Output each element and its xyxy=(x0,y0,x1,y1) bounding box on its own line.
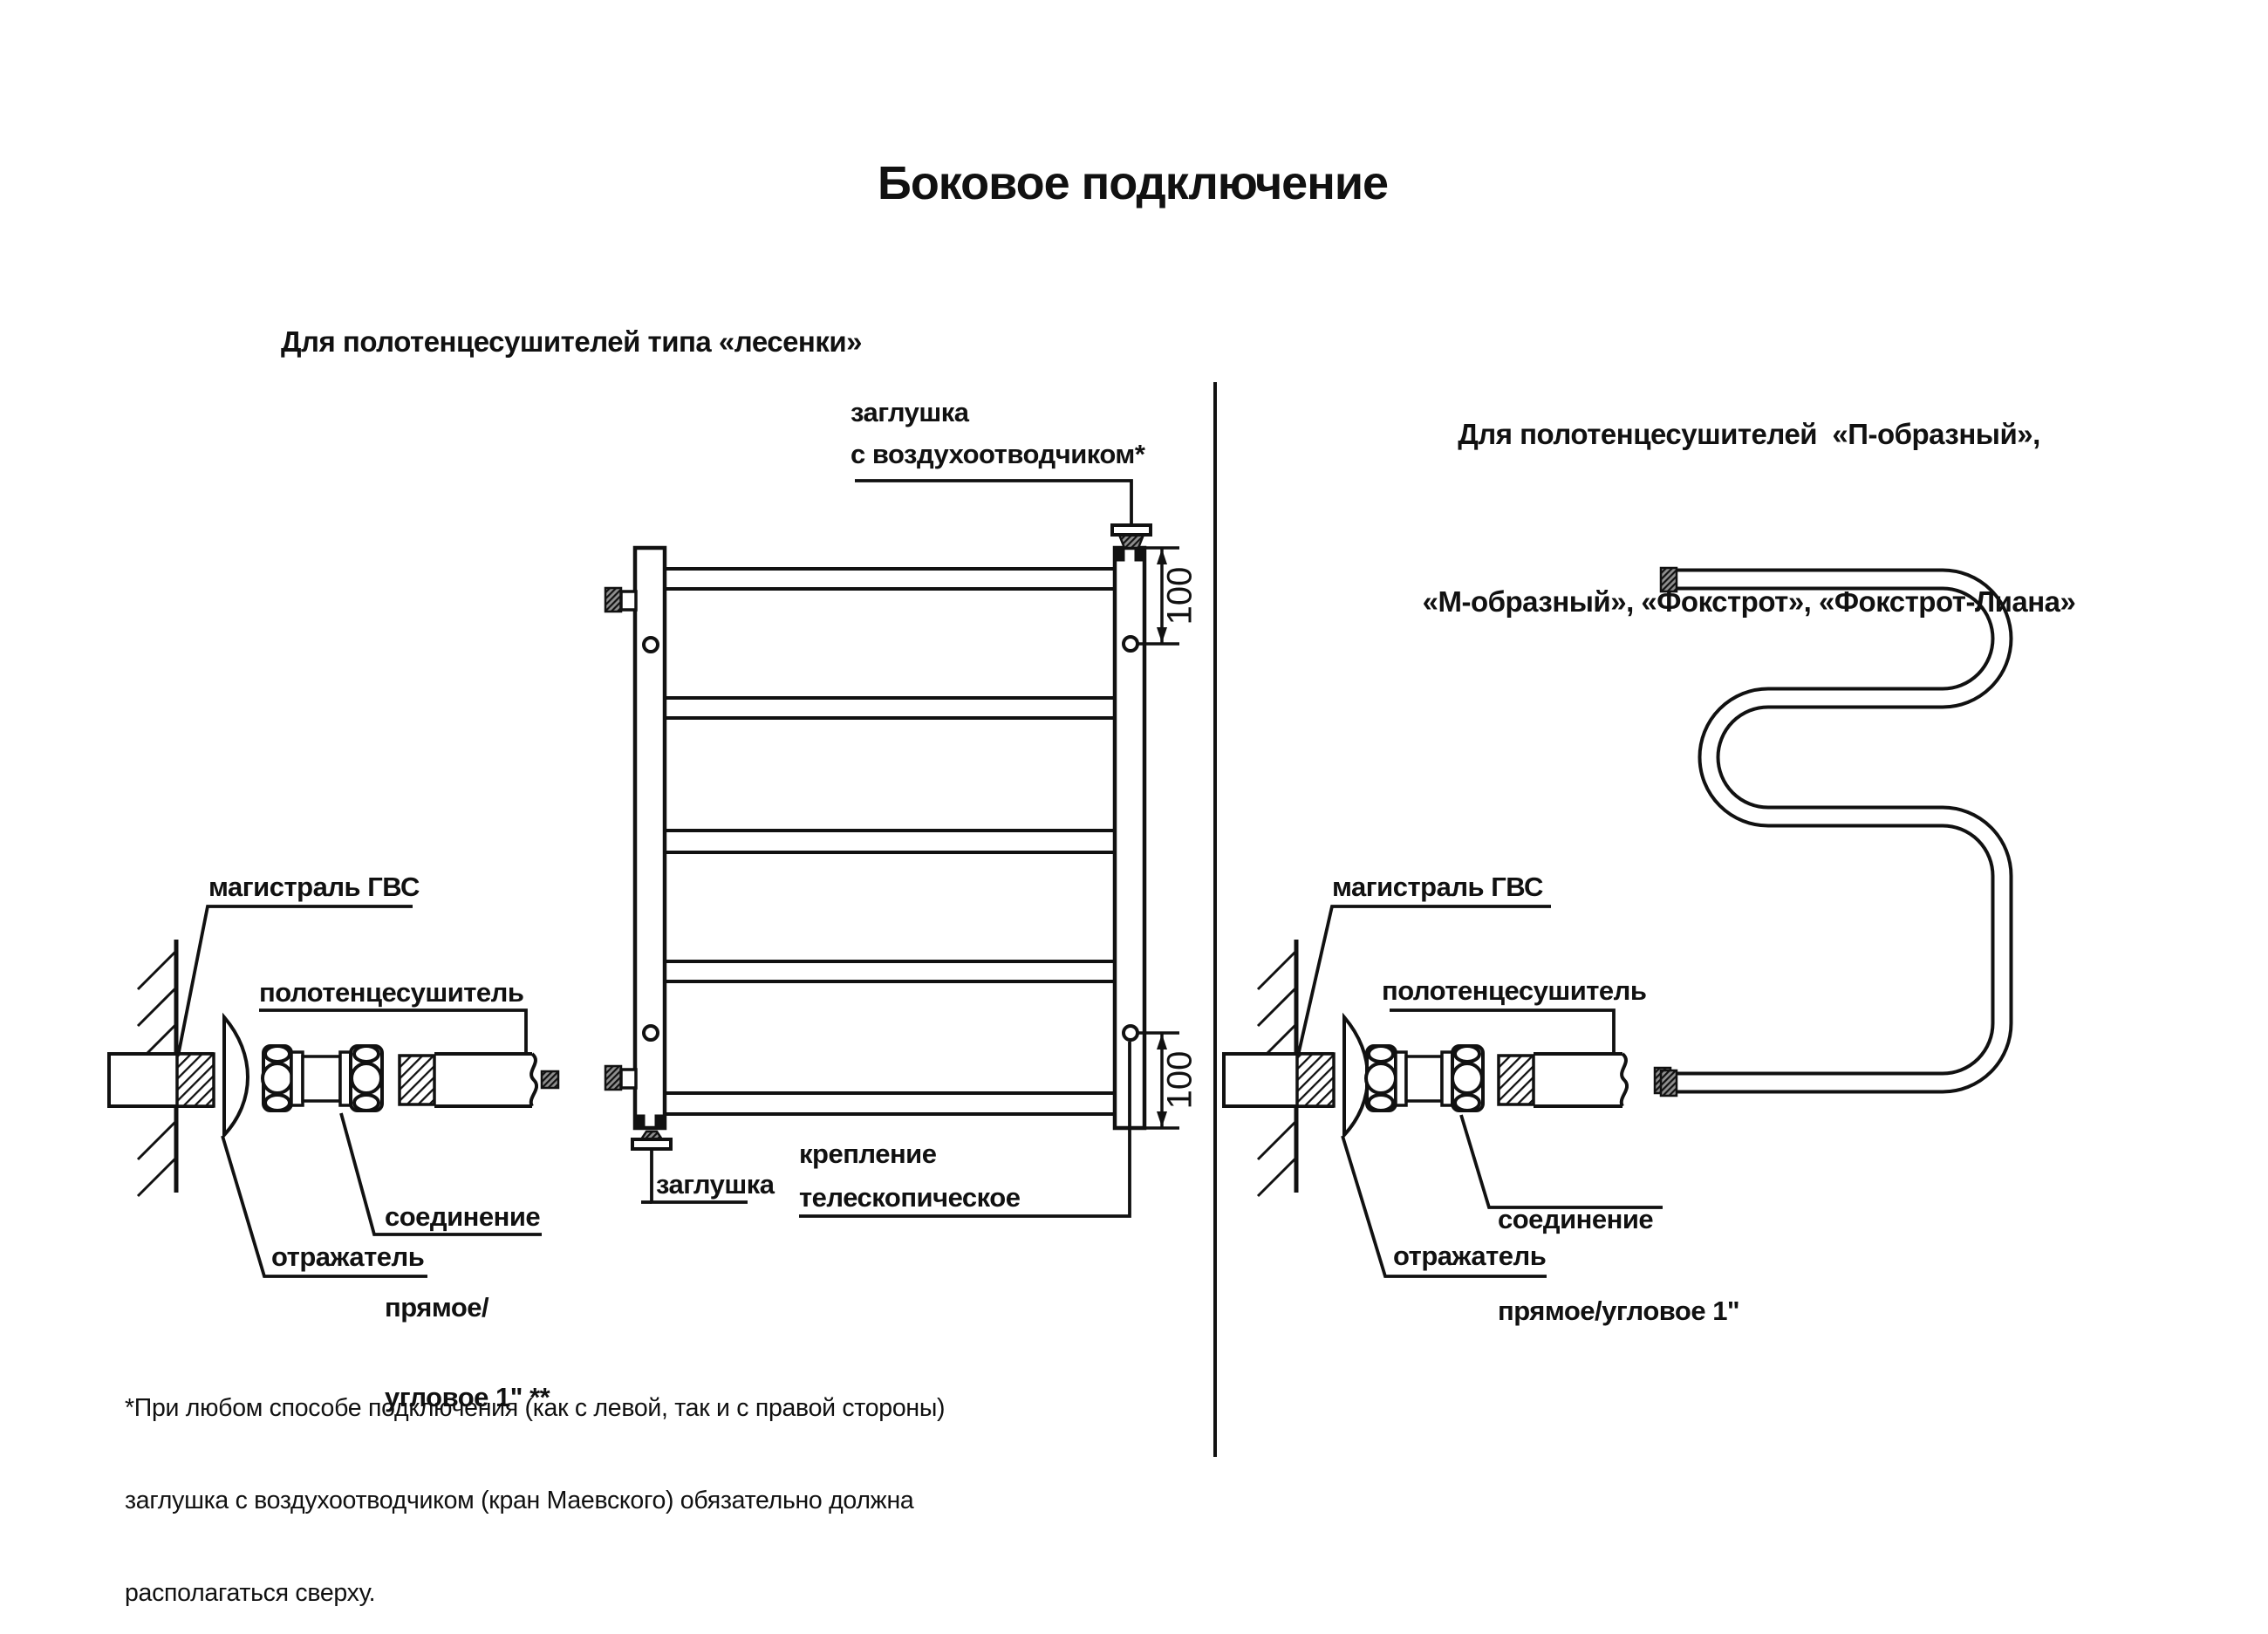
label-connection-right-line1: соединение xyxy=(1498,1204,1739,1234)
label-towel-dryer-right: полотенцесушитель xyxy=(1382,976,1646,1007)
footnote-line3: располагаться сверху. xyxy=(125,1578,945,1609)
side-fittings xyxy=(605,588,636,1090)
diagram-page: Боковое подключение Для полотенцесушител… xyxy=(0,0,2268,1634)
union-fitting-left xyxy=(263,1046,382,1111)
leader-dryer-right xyxy=(1390,1010,1614,1052)
right-heading-line1: Для полотенцесушителей «П-образный», xyxy=(1343,407,2155,462)
label-air-vent-line1: заглушка xyxy=(850,398,969,428)
label-mounting-line1: крепление xyxy=(799,1139,936,1170)
bottom-plug xyxy=(632,1131,671,1149)
label-supply-main-right: магистраль ГВС xyxy=(1332,872,1543,903)
leader-dryer-left xyxy=(259,1010,526,1052)
label-connection-left-line1: соединение xyxy=(385,1202,550,1233)
towel-pipe-left xyxy=(434,1054,536,1106)
reflector-right xyxy=(1344,1017,1368,1135)
right-heading-line2: «М-образный», «Фокстрот», «Фокстрот-Лиан… xyxy=(1343,574,2155,630)
footnote-line2: заглушка с воздухоотводчиком (кран Маевс… xyxy=(125,1486,945,1516)
leader-air-vent xyxy=(855,481,1131,525)
towel-pipe-right xyxy=(1534,1054,1627,1106)
label-reflector-right: отражатель xyxy=(1393,1241,1546,1272)
label-supply-main-left: магистраль ГВС xyxy=(208,872,420,903)
coil-end-cap-bottom xyxy=(1661,1070,1677,1096)
dimension-value-top: 100 xyxy=(1161,567,1200,626)
dimension-value-bottom: 100 xyxy=(1161,1051,1200,1110)
label-plug-bottom: заглушка xyxy=(656,1170,775,1200)
label-connection-left-line2: прямое/ xyxy=(385,1293,550,1323)
towel-pipe-thread-right xyxy=(1499,1056,1534,1104)
left-section-heading: Для полотенцесушителей типа «лесенки» xyxy=(281,326,862,359)
pipe-stub-left xyxy=(542,1071,558,1088)
air-vent-plug xyxy=(1112,525,1151,548)
union-fitting-right xyxy=(1366,1046,1483,1111)
pipe-thread-right xyxy=(1297,1054,1334,1106)
label-towel-dryer-left: полотенцесушитель xyxy=(259,978,523,1008)
ladder-towel-dryer xyxy=(605,525,1179,1149)
page-title: Боковое подключение xyxy=(878,157,1388,209)
label-air-vent-line2: с воздухоотводчиком* xyxy=(850,440,1144,470)
reflector-left xyxy=(224,1017,248,1135)
footnote-line1: *При любом способе подключения (как с ле… xyxy=(125,1393,945,1424)
pipe-thread-left xyxy=(177,1054,214,1106)
ladder-rungs xyxy=(663,569,1117,1114)
footnotes: *При любом способе подключения (как с ле… xyxy=(125,1332,945,1634)
bracket-marks xyxy=(637,550,1144,1127)
label-connection-right-line2: прямое/угловое 1" xyxy=(1498,1296,1739,1326)
label-mounting-line2: телескопическое xyxy=(799,1183,1020,1214)
towel-pipe-thread-left xyxy=(400,1056,434,1104)
label-reflector-left: отражатель xyxy=(271,1242,424,1273)
right-section-heading: Для полотенцесушителей «П-образный», «М-… xyxy=(1343,295,2155,742)
